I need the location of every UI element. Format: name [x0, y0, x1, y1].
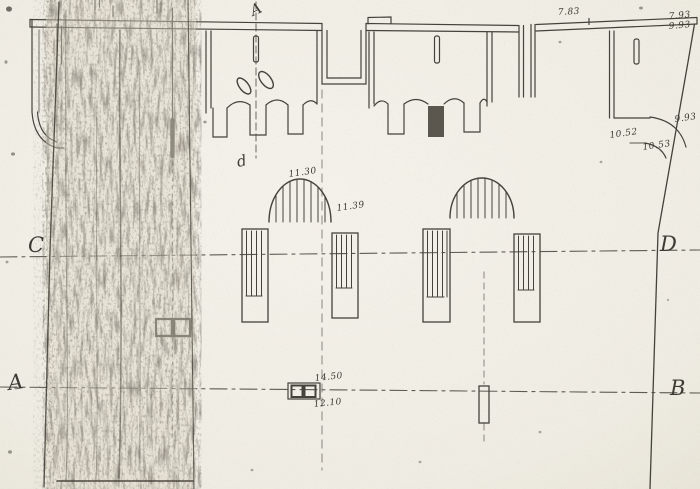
section-letter-b: B: [669, 376, 685, 400]
measurement-top-right-lower: 9.93: [668, 20, 691, 32]
measurement-top-center: 7.83: [558, 7, 581, 18]
scanned-drawing-page: C D A B A d 7.83 7.93 9.93 9.93 10.52 10…: [0, 0, 700, 489]
drawing-canvas: C D A B A d 7.83 7.93 9.93 9.93 10.52 10…: [0, 0, 700, 489]
scan-noise-band: [34, 0, 196, 489]
section-letter-d: D: [659, 232, 677, 256]
section-letter-c: C: [28, 233, 44, 257]
